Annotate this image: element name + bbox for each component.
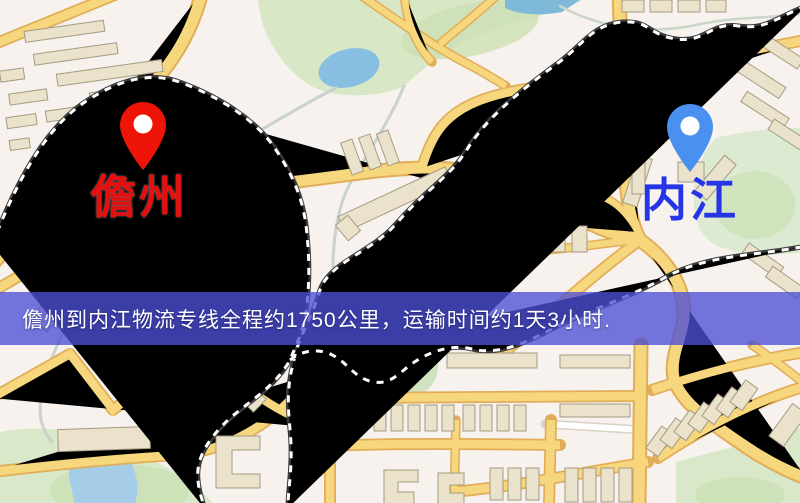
destination-pin-hole [681,117,700,136]
road [549,420,551,503]
destination-label: 内江 [641,177,739,223]
origin-pin-hole [134,115,153,134]
origin-label: 儋州 [90,174,188,220]
road [454,420,456,503]
route-info-text: 儋州到内江物流专线全程约1750公里，运输时间约1天3小时. [22,304,611,334]
map-canvas [0,0,800,503]
road [639,345,641,503]
route-info-banner: 儋州到内江物流专线全程约1750公里，运输时间约1天3小时. [0,292,800,345]
map-screenshot: 儋州 内江 儋州到内江物流专线全程约1750公里，运输时间约1天3小时. [0,0,800,503]
